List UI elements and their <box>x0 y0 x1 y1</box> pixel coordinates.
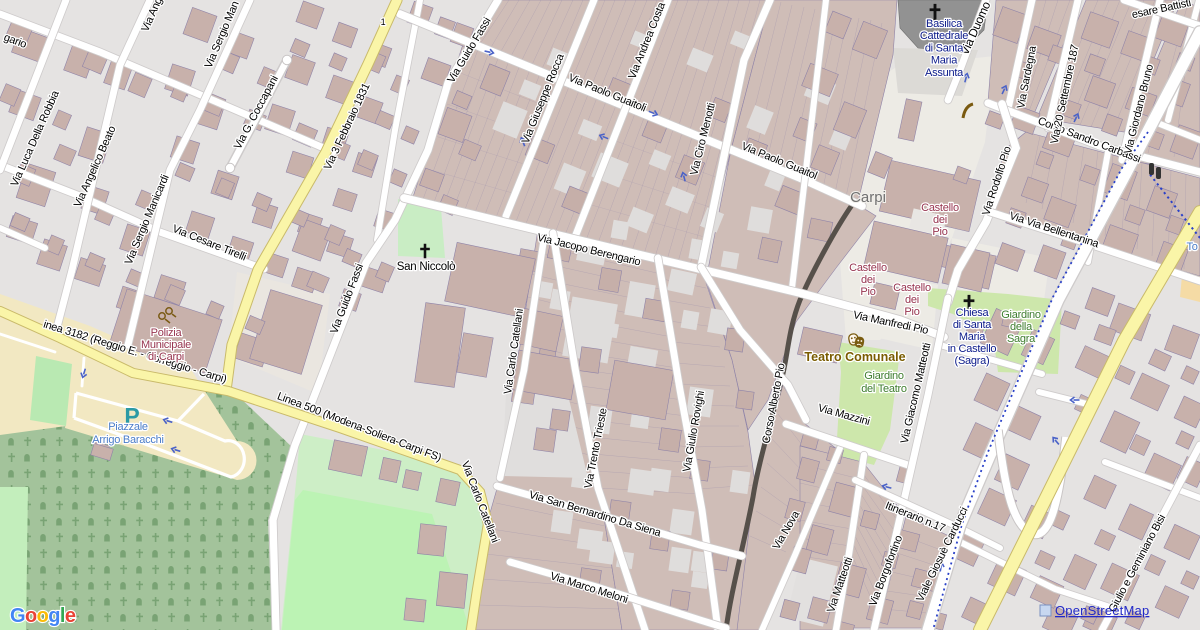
svg-text:del Teatro: del Teatro <box>861 383 907 395</box>
svg-text:1: 1 <box>381 17 386 27</box>
svg-text:Cattedrale: Cattedrale <box>920 30 968 42</box>
svg-text:Castello: Castello <box>849 262 887 274</box>
svg-text:(Sagra): (Sagra) <box>955 355 990 367</box>
svg-text:To: To <box>1186 241 1197 253</box>
svg-text:Polizia: Polizia <box>151 327 183 339</box>
svg-text:Giardino: Giardino <box>864 370 904 382</box>
svg-text:Giardino: Giardino <box>1001 309 1041 321</box>
svg-text:Carpi: Carpi <box>850 189 886 206</box>
svg-text:di Carpi: di Carpi <box>148 351 184 363</box>
svg-text:di Santa: di Santa <box>953 319 992 331</box>
svg-text:Piazzale: Piazzale <box>108 421 148 433</box>
svg-text:Pio: Pio <box>932 226 947 238</box>
svg-text:San Niccolò: San Niccolò <box>397 261 456 273</box>
svg-text:OpenStreetMap: OpenStreetMap <box>1055 603 1149 618</box>
svg-text:Maria: Maria <box>959 331 986 343</box>
svg-text:dei: dei <box>933 214 947 226</box>
svg-text:della: della <box>1010 321 1033 333</box>
svg-text:Assunta: Assunta <box>925 67 964 79</box>
svg-text:in Castello: in Castello <box>948 343 997 355</box>
svg-text:Castello: Castello <box>921 202 959 214</box>
svg-text:Pio: Pio <box>860 286 875 298</box>
svg-text:Google: Google <box>10 605 76 627</box>
svg-text:Castello: Castello <box>893 282 931 294</box>
svg-text:Municipale: Municipale <box>141 339 191 351</box>
svg-text:Arrigo Baracchi: Arrigo Baracchi <box>92 434 163 446</box>
svg-text:Sagra: Sagra <box>1007 333 1036 345</box>
svg-text:di Santa: di Santa <box>925 42 964 54</box>
svg-text:Maria: Maria <box>931 55 958 67</box>
svg-text:Pio: Pio <box>904 306 919 318</box>
svg-text:dei: dei <box>861 274 875 286</box>
svg-text:Basilica: Basilica <box>926 18 963 30</box>
svg-text:dei: dei <box>905 294 919 306</box>
svg-text:Teatro Comunale: Teatro Comunale <box>804 350 905 364</box>
svg-text:Chiesa: Chiesa <box>956 307 990 319</box>
